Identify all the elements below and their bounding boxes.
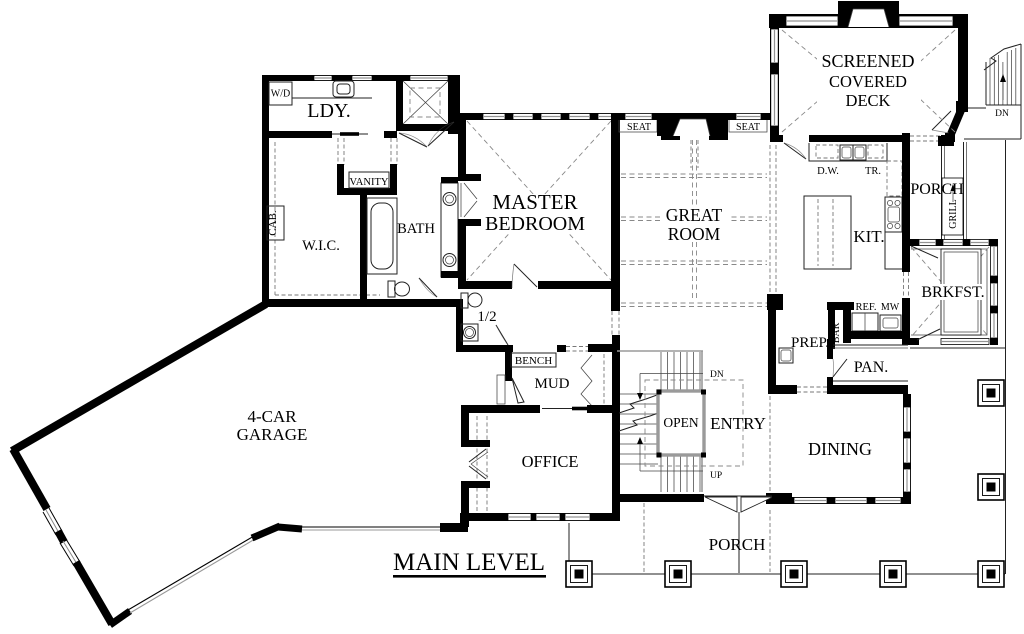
svg-text:BENCH: BENCH — [515, 355, 552, 367]
svg-text:MUD: MUD — [534, 376, 569, 392]
svg-text:DECK: DECK — [846, 91, 891, 110]
svg-text:VANITY: VANITY — [350, 177, 389, 188]
svg-text:DN: DN — [995, 109, 1009, 119]
svg-text:W.I.C.: W.I.C. — [302, 238, 340, 254]
svg-text:BEDROOM: BEDROOM — [485, 213, 585, 235]
svg-text:ENTRY: ENTRY — [710, 414, 766, 433]
svg-text:W/D: W/D — [271, 89, 290, 100]
svg-text:PAN.: PAN. — [854, 359, 889, 376]
svg-text:PORCH: PORCH — [910, 181, 964, 198]
svg-text:PORCH: PORCH — [709, 535, 766, 554]
svg-text:COVERED: COVERED — [829, 72, 907, 91]
svg-text:GREAT: GREAT — [666, 205, 723, 225]
svg-text:BATH: BATH — [397, 221, 435, 237]
svg-text:MAIN LEVEL: MAIN LEVEL — [393, 549, 545, 576]
svg-text:LDY.: LDY. — [307, 100, 351, 122]
svg-text:DN: DN — [710, 370, 724, 380]
svg-text:ROOM: ROOM — [668, 224, 721, 244]
svg-text:D.W.: D.W. — [817, 166, 839, 177]
svg-text:1/2: 1/2 — [477, 309, 496, 325]
svg-text:SCREENED: SCREENED — [821, 51, 914, 71]
svg-text:BRKFST.: BRKFST. — [921, 284, 984, 301]
svg-text:CAB.: CAB. — [267, 210, 279, 236]
svg-text:GARAGE: GARAGE — [237, 425, 308, 444]
svg-text:PREP.: PREP. — [791, 335, 829, 351]
svg-text:OFFICE: OFFICE — [522, 452, 579, 471]
svg-text:DINING: DINING — [808, 439, 872, 459]
svg-text:SEAT: SEAT — [627, 122, 651, 133]
svg-text:UP: UP — [710, 471, 722, 481]
svg-text:MW: MW — [881, 302, 900, 313]
svg-text:GRILL: GRILL — [948, 199, 959, 228]
svg-text:TR.: TR. — [865, 166, 881, 177]
svg-text:SEAT: SEAT — [736, 122, 760, 133]
svg-text:MASTER: MASTER — [492, 190, 577, 214]
svg-text:4-CAR: 4-CAR — [247, 407, 297, 426]
svg-text:KIT.: KIT. — [853, 227, 884, 246]
svg-text:REF.: REF. — [855, 302, 876, 313]
svg-text:OPEN: OPEN — [663, 415, 699, 430]
